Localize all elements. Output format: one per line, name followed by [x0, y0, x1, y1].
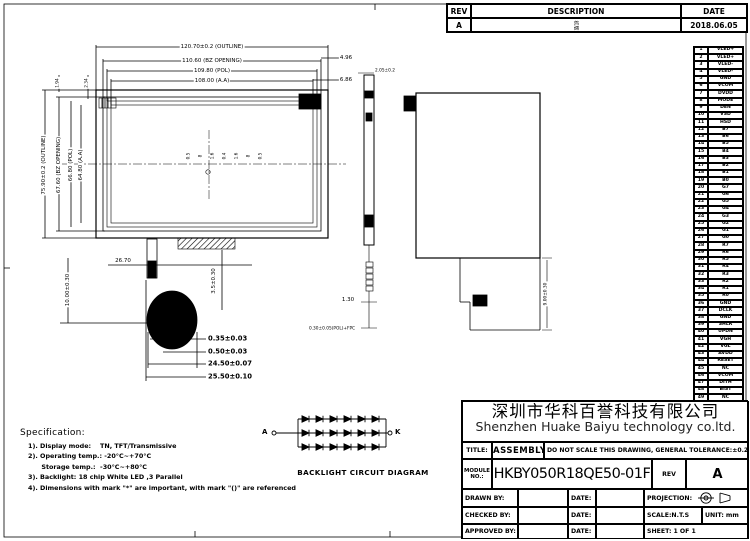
pin-assignment-table: 1VLED+2VLED+3VLED-4VLED-5GND6VCOM7DVDD8M… [693, 46, 744, 410]
pin-signal: R4 [708, 264, 743, 271]
pin-row: 16B3 [694, 156, 743, 163]
pin-row: 26G1 [694, 228, 743, 235]
led-diode-symbol [344, 416, 351, 422]
pin-signal: G6 [708, 192, 743, 199]
pin-row: 33R2 [694, 279, 743, 286]
pin-row: 41VGH [694, 336, 743, 343]
unit-cell: UNIT: mm [702, 507, 749, 524]
pin-number: 7 [694, 90, 708, 97]
pin-row: 39SHLR [694, 322, 743, 329]
pin-signal: VLED+ [708, 54, 743, 61]
pin-row: 1VLED+ [694, 47, 743, 54]
pin-row: 44RESET [694, 358, 743, 365]
pin-number: 18 [694, 170, 708, 177]
revision-letter: A [687, 467, 748, 482]
title-value-cell: ASSEMBLY [492, 442, 544, 459]
pin-signal: NC [708, 365, 743, 372]
date-value [596, 489, 644, 507]
led-diode-symbol [302, 430, 309, 436]
pin-row: 36GND [694, 300, 743, 307]
pin-row: 10VSD [694, 112, 743, 119]
led-diode-symbol [372, 430, 379, 436]
pin-number: 3 [694, 61, 708, 68]
pin-row: 30R5 [694, 257, 743, 264]
pin-signal: B3 [708, 156, 743, 163]
pin-signal: HSD [708, 119, 743, 126]
spec-item: 4). Dimensions with mark "*" are importa… [28, 483, 348, 493]
pin-signal: R1 [708, 286, 743, 293]
title-block: 深圳市华科百誉科技有限公司 Shenzhen Huake Baiyu techn… [461, 400, 748, 539]
pin-row: 17B2 [694, 163, 743, 170]
date-label: DATE: [569, 495, 591, 502]
pin-number: 6 [694, 83, 708, 90]
center-stack-label: 1.6 [212, 152, 217, 161]
pin-number: 36 [694, 300, 708, 307]
pin-row: 27G0 [694, 235, 743, 242]
pin-signal: B4 [708, 148, 743, 155]
led-diode-symbol [302, 416, 309, 422]
fpc-hatch [178, 238, 235, 249]
led-diode-symbol [316, 430, 323, 436]
pin-number: 10 [694, 112, 708, 119]
dim-label: 4.96 [339, 55, 353, 61]
drawn-by-cell: DRAWN BY: [462, 489, 518, 507]
pin-signal: R7 [708, 242, 743, 249]
sheet-value: 1 OF 1 [671, 528, 695, 535]
pin-number: 4 [694, 69, 708, 76]
pin-row: 28R7 [694, 242, 743, 249]
pin-row: 5GND [694, 76, 743, 83]
pin-number: 1 [694, 47, 708, 54]
scale-label: SCALE:N.T.S [645, 512, 689, 519]
pin-signal: G1 [708, 228, 743, 235]
pin-row: 42VGL [694, 344, 743, 351]
revision-header-row: REV DESCRIPTION DATE [447, 4, 747, 18]
dim-label: 3.5±0.30 [211, 267, 217, 295]
dim-label: 2.05±0.2 [374, 70, 396, 75]
pin-row: 11HSD [694, 119, 743, 126]
dim-label: 64.80 (A.A) [78, 149, 84, 182]
date-label: DATE: [569, 512, 591, 519]
pin-number: 45 [694, 365, 708, 372]
pin-signal: B0 [708, 177, 743, 184]
spec-item: Storage temp.: -30°C~+80°C [28, 462, 348, 472]
led-diode-symbol [358, 444, 365, 450]
cathode-label: K [395, 428, 400, 436]
pin-number: 13 [694, 134, 708, 141]
pin-signal: VLED+ [708, 47, 743, 54]
pin-number: 34 [694, 286, 708, 293]
pin-row: 4VLED- [694, 69, 743, 76]
pin-signal: G7 [708, 184, 743, 191]
center-stack-label: 0.4 [224, 152, 229, 161]
date-cell: DATE: [568, 489, 596, 507]
back-view-corner-mark [404, 96, 416, 111]
date-value [596, 524, 644, 539]
dim-label: 108.00 (A.A) [194, 78, 230, 84]
pin-row: 37DCLK [694, 307, 743, 314]
front-view-corner-mark [299, 94, 321, 109]
pin-number: 43 [694, 351, 708, 358]
pin-number: 32 [694, 271, 708, 278]
dim-label: 0.30±0.05(POL)+FPC [308, 328, 356, 333]
dim-label: 120.70±0.2 (OUTLINE) [180, 44, 245, 50]
pin-signal: UPDN [708, 329, 743, 336]
pin-number: 9 [694, 105, 708, 112]
date-value [596, 507, 644, 524]
pin-row: 9DEN [694, 105, 743, 112]
pin-number: 25 [694, 221, 708, 228]
pin-signal: B2 [708, 163, 743, 170]
date-value: 2018.06.05 [681, 18, 747, 32]
led-diode-symbol [372, 416, 379, 422]
checked-by-label: CHECKED BY: [463, 512, 511, 519]
pin-signal: GND [708, 315, 743, 322]
checked-by-cell: CHECKED BY: [462, 507, 518, 524]
rev-value-cell: A [686, 459, 749, 489]
pin-row: 38GND [694, 315, 743, 322]
pin-row: 15B4 [694, 148, 743, 155]
title-label: TITLE: [466, 447, 487, 454]
pin-row: 32R3 [694, 271, 743, 278]
pin-signal: DCLK [708, 307, 743, 314]
checked-by-value [518, 507, 568, 524]
unit-value: mm [724, 512, 739, 519]
pin-signal: VLED- [708, 69, 743, 76]
pin-number: 37 [694, 307, 708, 314]
rev-value: A [447, 18, 471, 32]
date-cell: DATE: [568, 507, 596, 524]
pin-signal: VCOM [708, 373, 743, 380]
dim-label: 25.50±0.10 [207, 373, 253, 380]
pin-row: 8MODE [694, 98, 743, 105]
pin-signal: GND [708, 76, 743, 83]
center-stack-label: 8 [200, 154, 205, 159]
pin-row: 14B5 [694, 141, 743, 148]
pin-row: 24G3 [694, 213, 743, 220]
led-diode-symbol [330, 430, 337, 436]
sheet-label: SHEET: [645, 528, 671, 535]
pin-row: 23G4 [694, 206, 743, 213]
pin-row: 45NC [694, 365, 743, 372]
specification-block: Specification: 1). Display mode: TN, TFT… [20, 428, 85, 438]
center-stack-label: 0.5 [188, 152, 193, 161]
pin-row: 46VCOM [694, 373, 743, 380]
dim-label: 10.00±0.30 [65, 273, 71, 308]
module-value-cell: HKBY050R18QE50-01F [492, 459, 652, 489]
pin-signal: DEN [708, 105, 743, 112]
pin-number: 2 [694, 54, 708, 61]
pin-row: 13B6 [694, 134, 743, 141]
dim-label: 75.90±0.2 (OUTLINE) [41, 134, 47, 195]
anode-label: A [262, 428, 267, 436]
pin-row: 6VCOM [694, 83, 743, 90]
dim-label: 0.50±0.03 [207, 348, 248, 355]
pin-signal: G2 [708, 221, 743, 228]
pin-number: 31 [694, 264, 708, 271]
rev-label-cell: REV [652, 459, 686, 489]
pin-row: 12B7 [694, 127, 743, 134]
spec-item: 1). Display mode: TN, TFT/Transmissive [28, 441, 348, 451]
specification-items: 1). Display mode: TN, TFT/Transmissive2)… [28, 441, 348, 493]
pin-row: 43AVDD [694, 351, 743, 358]
pin-number: 20 [694, 184, 708, 191]
title-label-cell: TITLE: [462, 442, 492, 459]
rev-header: REV [447, 4, 471, 18]
date-label: DATE: [569, 528, 591, 535]
pin-number: 26 [694, 228, 708, 235]
pin-number: 22 [694, 199, 708, 206]
pin-signal: DVDD [708, 90, 743, 97]
pin-row: 40UPDN [694, 329, 743, 336]
dim-label: 110.60 (BZ OPENING) [181, 58, 243, 64]
sheet-cell: SHEET: 1 OF 1 [644, 524, 749, 539]
pin-number: 21 [694, 192, 708, 199]
pin-number: 44 [694, 358, 708, 365]
pin-signal: G4 [708, 206, 743, 213]
date-cell: DATE: [568, 524, 596, 539]
pin-signal: R0 [708, 293, 743, 300]
pin-number: 30 [694, 257, 708, 264]
pin-row: 18B1 [694, 170, 743, 177]
revision-row: A 初版 2018.06.05 [447, 18, 747, 32]
pin-signal: VGH [708, 336, 743, 343]
assembly-drawing-sheet: 120.70±0.2 (OUTLINE) 110.60 (BZ OPENING)… [0, 0, 750, 541]
pin-number: 33 [694, 279, 708, 286]
specification-title: Specification: [20, 428, 85, 438]
pin-number: 42 [694, 344, 708, 351]
pin-number: 48 [694, 387, 708, 394]
pin-number: 40 [694, 329, 708, 336]
pin-signal: B6 [708, 134, 743, 141]
dim-label: 9.00±0.30 [545, 282, 550, 307]
pin-signal: R2 [708, 279, 743, 286]
pin-row: 19B0 [694, 177, 743, 184]
pin-row: 22G5 [694, 199, 743, 206]
pin-number: 47 [694, 380, 708, 387]
dim-label: 24.50±0.07 [207, 360, 253, 367]
pin-number: 8 [694, 98, 708, 105]
led-diode-symbol [344, 430, 351, 436]
spec-item: 2). Operating temp.: -20°C~+70°C [28, 451, 348, 461]
drawing-title: ASSEMBLY [493, 446, 543, 456]
pin-signal: B5 [708, 141, 743, 148]
approved-by-label: APPROVED BY: [463, 528, 516, 535]
fpc-hole [147, 291, 197, 349]
pin-signal: SHLR [708, 322, 743, 329]
dim-label: 109.80 (POL) [193, 68, 231, 74]
pin-signal: VSD [708, 112, 743, 119]
description-header: DESCRIPTION [471, 4, 681, 18]
description-value: 初版 [471, 18, 681, 32]
pin-number: 41 [694, 336, 708, 343]
led-diode-symbol [358, 430, 365, 436]
pin-row: 34R1 [694, 286, 743, 293]
pin-number: 24 [694, 213, 708, 220]
pin-row: 47DITH [694, 380, 743, 387]
tolerance-note: DO NOT SCALE THIS DRAWING, GENERAL TOLER… [545, 447, 748, 454]
pin-row: 21G6 [694, 192, 743, 199]
pin-signal: GND [708, 300, 743, 307]
pin-number: 29 [694, 250, 708, 257]
drawn-by-value [518, 489, 568, 507]
pin-signal: B1 [708, 170, 743, 177]
pin-row: 48BIST [694, 387, 743, 394]
pin-row: 29R6 [694, 250, 743, 257]
pin-signal: G3 [708, 213, 743, 220]
pin-signal: VGL [708, 344, 743, 351]
dim-label: 67.60 (BZ OPENING) [56, 136, 62, 194]
dim-label: 66.80 (POL) [68, 148, 74, 183]
pin-signal: R6 [708, 250, 743, 257]
dim-label: 0.35±0.03 [207, 335, 248, 342]
pin-signal: MODE [708, 98, 743, 105]
pin-number: 12 [694, 127, 708, 134]
center-stack-label: 1.6 [236, 152, 241, 161]
pin-row: 7DVDD [694, 90, 743, 97]
led-diode-symbol [330, 416, 337, 422]
pin-number: 5 [694, 76, 708, 83]
pin-row: 2VLED+ [694, 54, 743, 61]
module-number: HKBY050R18QE50-01F [493, 466, 651, 482]
center-stack-label: 8 [248, 154, 253, 159]
pin-signal: DITH [708, 380, 743, 387]
pin-number: 14 [694, 141, 708, 148]
pin-signal: G5 [708, 199, 743, 206]
drawn-by-label: DRAWN BY: [463, 495, 504, 502]
pin-signal: AVDD [708, 351, 743, 358]
module-label-cell: MODULE NO.: [462, 459, 492, 489]
rev-label: REV [662, 471, 676, 478]
pin-row: 25G2 [694, 221, 743, 228]
pin-number: 38 [694, 315, 708, 322]
pin-signal: VCOM [708, 83, 743, 90]
center-stack-label: 0.5 [260, 152, 265, 161]
approved-by-cell: APPROVED BY: [462, 524, 518, 539]
pin-signal: VLED- [708, 61, 743, 68]
pin-number: 23 [694, 206, 708, 213]
pin-number: 35 [694, 293, 708, 300]
company-cell: 深圳市华科百誉科技有限公司 Shenzhen Huake Baiyu techn… [462, 401, 749, 442]
pin-number: 46 [694, 373, 708, 380]
note-cell: DO NOT SCALE THIS DRAWING, GENERAL TOLER… [544, 442, 749, 459]
pin-number: 15 [694, 148, 708, 155]
projection-label: PROJECTION: [645, 495, 692, 502]
pin-signal: BIST [708, 387, 743, 394]
dim-label: 6.86 [339, 77, 353, 83]
pin-number: 39 [694, 322, 708, 329]
third-angle-projection-icon [694, 491, 734, 505]
led-diode-symbol [358, 416, 365, 422]
pin-row: 35R0 [694, 293, 743, 300]
pin-row: 31R4 [694, 264, 743, 271]
pin-number: 27 [694, 235, 708, 242]
pin-row: 3VLED- [694, 61, 743, 68]
dim-label: 26.70 [114, 258, 132, 264]
terminal-circle [388, 431, 392, 435]
pin-signal: R5 [708, 257, 743, 264]
led-diode-symbol [316, 416, 323, 422]
pin-number: 17 [694, 163, 708, 170]
pin-number: 19 [694, 177, 708, 184]
back-view-outline [416, 93, 540, 258]
module-label: MODULE NO.: [463, 468, 491, 480]
projection-cell: PROJECTION: [644, 489, 749, 507]
dim-label: 2.34 [86, 77, 91, 89]
description-text: 初版 [572, 20, 579, 30]
pin-number: 11 [694, 119, 708, 126]
scale-cell: SCALE:N.T.S [644, 507, 702, 524]
dim-label: 1.94 [57, 77, 62, 89]
pin-signal: G0 [708, 235, 743, 242]
pin-row: 20G7 [694, 184, 743, 191]
led-diode-symbol [372, 444, 379, 450]
unit-label: UNIT: [703, 512, 724, 519]
approved-by-value [518, 524, 568, 539]
date-header: DATE [681, 4, 747, 18]
spec-item: 3). Backlight: 18 chip White LED ,3 Para… [28, 472, 348, 482]
pin-signal: RESET [708, 358, 743, 365]
dim-label: 1.30 [341, 297, 355, 303]
pin-signal: R3 [708, 271, 743, 278]
company-name-en: Shenzhen Huake Baiyu technology co.ltd. [463, 420, 748, 434]
terminal-circle [272, 431, 276, 435]
pin-number: 28 [694, 242, 708, 249]
pin-number: 16 [694, 156, 708, 163]
revision-table: REV DESCRIPTION DATE A 初版 2018.06.05 [446, 3, 748, 33]
pin-signal: B7 [708, 127, 743, 134]
